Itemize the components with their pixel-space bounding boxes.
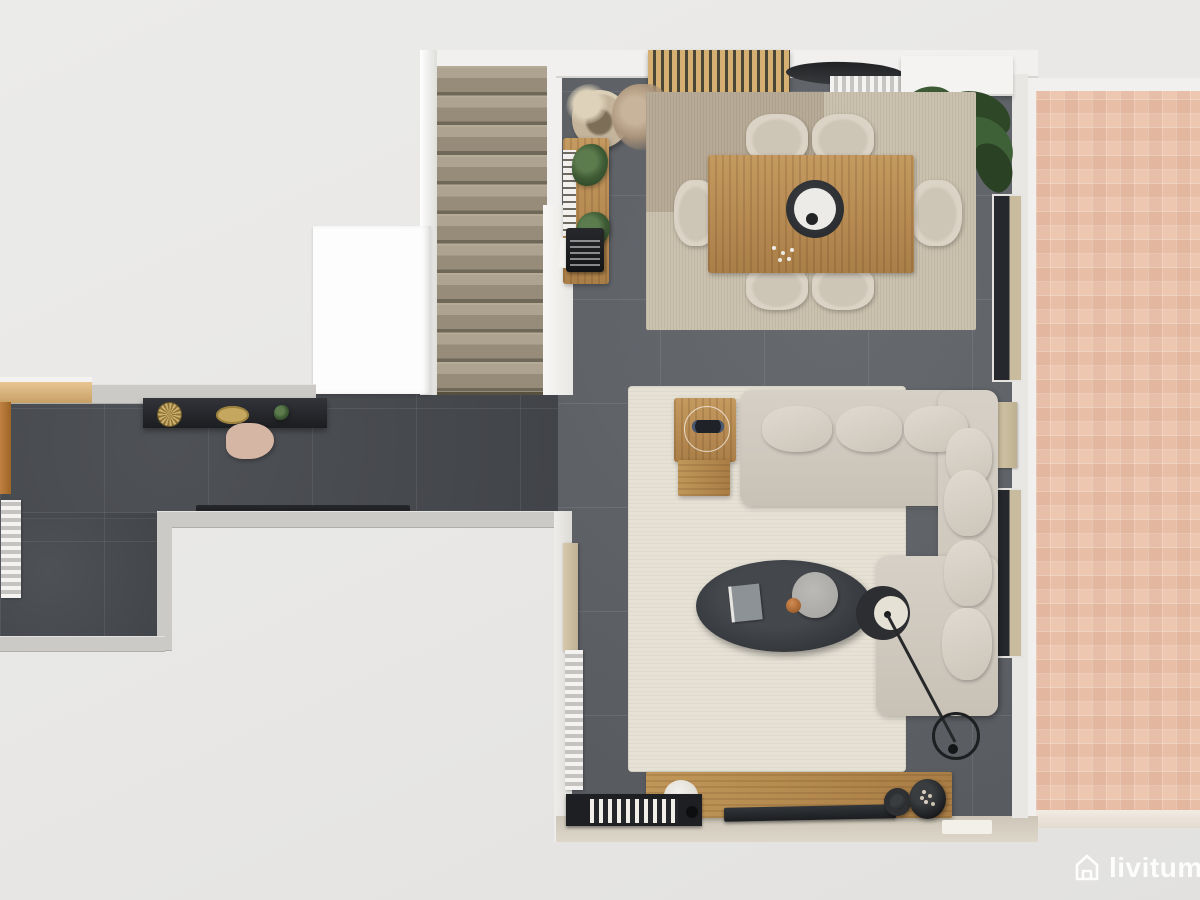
window-1	[992, 194, 1023, 382]
sofa-pillow	[944, 470, 992, 536]
vase-small	[884, 788, 911, 816]
slatted-wood-panel	[648, 50, 790, 92]
media-shelf-books	[590, 799, 678, 823]
floor-plan-canvas: livitum	[0, 0, 1200, 900]
brand-logo: livitum	[1074, 852, 1200, 884]
door-threshold	[942, 820, 992, 834]
brand-text: livitum	[1109, 852, 1200, 884]
media-shelf-knob	[686, 806, 698, 818]
vase-large	[909, 779, 946, 819]
kitchen-radiator	[1, 500, 21, 598]
dome-radio	[692, 420, 724, 433]
coffee-table	[696, 560, 872, 652]
terrace-top-edge-wall	[1022, 78, 1200, 91]
gold-medallion-decor	[158, 403, 181, 426]
round-tray	[792, 572, 838, 618]
sofa-pillow	[942, 608, 992, 680]
hallway-floor-lower	[0, 513, 163, 640]
staircase-steps	[437, 66, 547, 395]
kitchen-wood-counter-top	[0, 382, 92, 403]
gold-tray	[216, 406, 249, 424]
dining-chair	[910, 180, 962, 246]
sofa-pillow	[762, 406, 832, 452]
house-icon	[1074, 853, 1100, 883]
kitchen-bottom-wall-vertical	[157, 511, 172, 651]
kitchen-lower-wall	[0, 636, 165, 652]
coffee-table-book	[728, 583, 763, 622]
copper-vase	[786, 598, 801, 613]
terrace-brick-floor	[1036, 91, 1200, 814]
closet-volume	[313, 226, 431, 394]
sofa-pillow	[944, 540, 992, 606]
living-left-radiator	[565, 650, 583, 790]
tall-radiator-panel	[563, 543, 578, 651]
terrace-bottom-edge	[1036, 810, 1200, 828]
staircase-right-wall-upper	[547, 56, 562, 208]
kitchen-cabinet	[0, 402, 11, 494]
petals	[772, 246, 776, 250]
window-wood-panel	[997, 402, 1017, 468]
centerpiece-cup	[806, 213, 818, 225]
kitchen-bottom-wall	[157, 511, 560, 528]
side-table-step	[678, 460, 730, 496]
typewriter-keys	[570, 240, 600, 266]
sofa-pillow	[836, 406, 902, 452]
vase-sprigs	[922, 790, 926, 794]
arc-lamp-base-weight	[948, 744, 958, 754]
